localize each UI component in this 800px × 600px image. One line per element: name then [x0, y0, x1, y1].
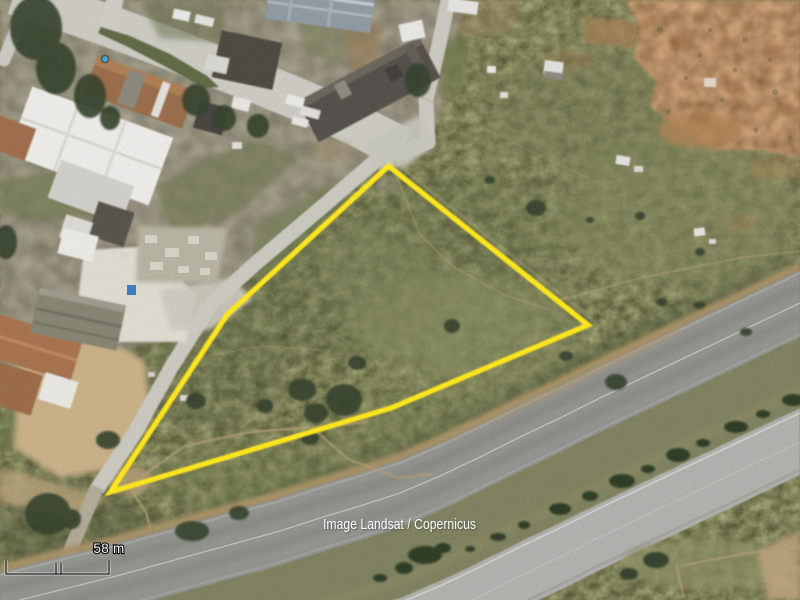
svg-text:58 m: 58 m: [93, 541, 124, 556]
svg-text:Image Landsat / Copernicus: Image Landsat / Copernicus: [323, 516, 476, 533]
